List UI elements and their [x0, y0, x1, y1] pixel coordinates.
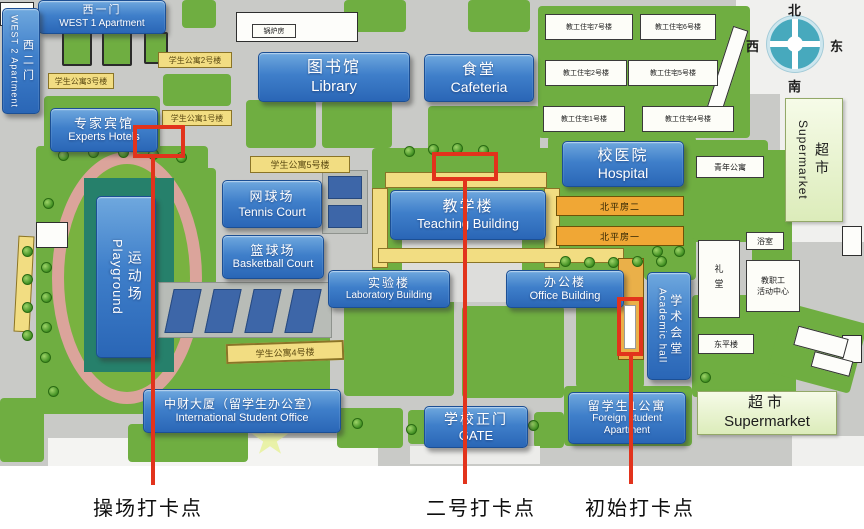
compass-south-label: 南	[788, 76, 801, 95]
office-building-label: 办公楼 Office Building	[506, 270, 624, 308]
playground-checkpoint-caption: 操场打卡点	[93, 492, 203, 521]
lawn-area	[534, 412, 564, 448]
tennis-court-label: 网球场 Tennis Court	[222, 180, 322, 228]
academic-hall-label: Academic hall 学术会堂	[647, 272, 691, 380]
basketball-court-label: 篮球场 Basketball Court	[222, 235, 324, 279]
initial-checkpoint-line	[629, 354, 633, 484]
lawn-area	[322, 100, 392, 148]
tennis-courts	[322, 170, 368, 234]
court-surface	[284, 289, 321, 333]
staff-residence-6: 教工住宅6号楼	[640, 14, 716, 40]
tree-icon	[352, 418, 363, 429]
compass-north-label: 北	[788, 0, 801, 19]
lawn-area	[0, 398, 44, 462]
teaching-building-label: 教学楼 Teaching Building	[390, 190, 546, 240]
court-surface	[164, 289, 201, 333]
tree-icon	[584, 257, 595, 268]
staff-residence-5: 教工住宅5号楼	[628, 60, 718, 86]
map-edge-area	[792, 436, 864, 466]
international-student-office-label: 中财大厦（留学生办公室） International Student Offic…	[143, 389, 341, 433]
no2-checkpoint-line	[463, 180, 467, 484]
tree-icon	[48, 386, 59, 397]
auditorium: 礼堂	[698, 240, 740, 318]
lawn-area	[163, 74, 231, 106]
tree-icon	[528, 420, 539, 431]
basketball-courts	[158, 282, 332, 338]
student-apartment-1: 学生公寓1号楼	[162, 110, 232, 126]
lawn-area	[182, 0, 216, 28]
court-surface	[244, 289, 281, 333]
library-label: 图书馆 Library	[258, 52, 410, 102]
playground-checkpoint-line	[151, 158, 155, 485]
compass-icon	[767, 16, 823, 72]
no2-checkpoint-caption: 二号打卡点	[426, 492, 536, 521]
lawn-area	[468, 0, 530, 32]
playground-label: Playground 运动场	[96, 196, 156, 358]
tree-icon	[608, 257, 619, 268]
tree-icon	[560, 256, 571, 267]
laboratory-building-label: 实验楼 Laboratory Building	[328, 270, 450, 308]
tree-icon	[41, 262, 52, 273]
student-apartment-2: 学生公寓2号楼	[158, 52, 232, 68]
court-surface	[204, 289, 241, 333]
compass-east-label: 东	[830, 36, 843, 55]
no2-checkpoint-marker	[432, 152, 498, 181]
tree-icon	[41, 322, 52, 333]
gate-label: 学校正门 GATE	[424, 406, 528, 448]
boiler-house-label: 锅炉房	[252, 24, 296, 38]
student-apartment-5: 学生公寓5号楼	[250, 156, 350, 173]
initial-checkpoint-caption: 初始打卡点	[585, 492, 695, 521]
supermarket-label-vertical: Supermarket 超市	[785, 98, 843, 222]
lawn-area	[462, 306, 564, 398]
youth-apartment: 青年公寓	[696, 156, 764, 178]
tree-icon	[40, 352, 51, 363]
cafeteria-label: 食堂 Cafeteria	[424, 54, 534, 102]
tree-icon	[700, 372, 711, 383]
west1-apartment-label: 西一门 WEST 1 Apartment	[38, 0, 166, 34]
hospital-label: 校医院 Hospital	[562, 141, 684, 187]
staff-residence-4: 教工住宅4号楼	[642, 106, 734, 132]
foreign-student-apartment-label: 留学生1公寓 Foreign student Apartment	[568, 392, 686, 444]
lawn-area	[246, 100, 316, 148]
tree-icon	[632, 256, 643, 267]
playground-checkpoint-marker	[133, 125, 185, 158]
tree-icon	[41, 292, 52, 303]
tree-icon	[22, 246, 33, 257]
tree-icon	[22, 302, 33, 313]
initial-checkpoint-marker	[617, 297, 643, 356]
tree-icon	[43, 198, 54, 209]
court-surface	[328, 176, 362, 199]
staff-residence-1: 教工住宅1号楼	[543, 106, 625, 132]
tree-icon	[22, 330, 33, 341]
tree-icon	[656, 256, 667, 267]
supermarket-label: 超市 Supermarket	[697, 391, 837, 435]
west2-apartment-label: WEST 2 Apartment 西二门	[2, 8, 40, 114]
tree-icon	[652, 246, 663, 257]
gate-path	[410, 446, 540, 464]
building	[842, 226, 862, 256]
compass-west-label: 西	[746, 36, 759, 55]
bath-house: 浴室	[746, 232, 784, 250]
staff-residence-2: 教工住宅2号楼	[545, 60, 627, 86]
tree-icon	[406, 424, 417, 435]
staff-activity-center: 教职工 活动中心	[746, 260, 800, 312]
dongping-building: 东平楼	[698, 334, 754, 354]
building	[36, 222, 68, 248]
lawn-area	[337, 408, 403, 448]
student-apartment-4: 学生公寓4号楼	[226, 340, 345, 364]
north-bungalow-2: 北平房二	[556, 196, 684, 216]
tree-icon	[22, 274, 33, 285]
tree-icon	[404, 146, 415, 157]
tree-icon	[674, 246, 685, 257]
court-surface	[328, 205, 362, 228]
student-apartment-3: 学生公寓3号楼	[48, 73, 114, 89]
lawn-area	[344, 298, 454, 396]
north-bungalow-1: 北平房一	[556, 226, 684, 246]
compass-center	[787, 36, 803, 52]
campus-map: 锅炉房 教工住宅7号楼 教工住宅6号楼 教工住宅2号楼 教工住宅5号楼 教工住宅…	[0, 0, 864, 529]
staff-residence-7: 教工住宅7号楼	[545, 14, 633, 40]
